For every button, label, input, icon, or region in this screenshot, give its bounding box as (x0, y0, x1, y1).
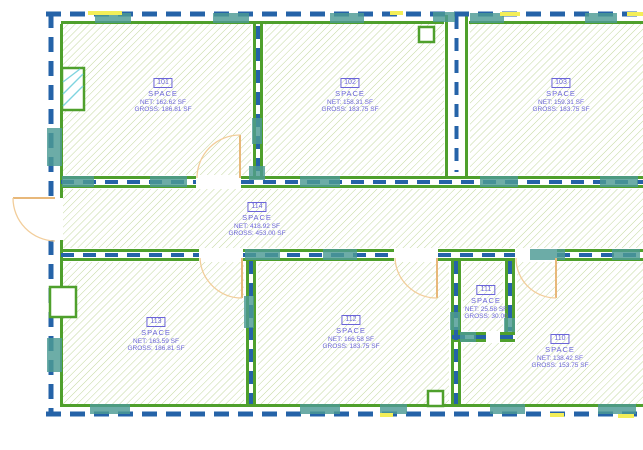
room-number-box: 102 (340, 78, 360, 88)
room-gross-area: GROSS: 453.00 SF (228, 230, 285, 238)
room-name: SPACE (532, 90, 589, 99)
room-name: SPACE (228, 214, 285, 223)
room-number-box: 112 (341, 315, 360, 325)
room-gross-area: GROSS: 153.75 SF (531, 362, 588, 370)
room-label-103[interactable]: 103 SPACE NET: 159.31 SF GROSS: 183.75 S… (532, 71, 589, 114)
room-label-110[interactable]: 110 SPACE NET: 138.42 SF GROSS: 153.75 S… (531, 327, 588, 370)
room-number-box: 110 (550, 334, 569, 344)
floorplan-canvas[interactable]: 101 SPACE NET: 162.62 SF GROSS: 186.81 S… (0, 0, 643, 450)
room-gross-area: GROSS: 30.00 (464, 313, 507, 321)
room-name: SPACE (134, 90, 191, 99)
room-gross-area: GROSS: 183.75 SF (532, 106, 589, 114)
room-number-box: 111 (477, 285, 496, 295)
room-net-area: NET: 138.42 SF (531, 355, 588, 363)
room-number-box: 101 (153, 78, 173, 88)
room-gross-area: GROSS: 186.81 SF (134, 106, 191, 114)
room-number-box: 113 (146, 317, 165, 327)
room-net-area: NET: 158.31 SF (321, 99, 378, 107)
room-gross-area: GROSS: 183.75 SF (321, 106, 378, 114)
floorplan-drawing (0, 0, 643, 450)
room-label-114[interactable]: 114 SPACE NET: 418.92 SF GROSS: 453.00 S… (228, 195, 285, 238)
room-label-112[interactable]: 112 SPACE NET: 166.58 SF GROSS: 183.75 S… (322, 308, 379, 351)
room-net-area: NET: 163.59 SF (127, 338, 184, 346)
room-name: SPACE (322, 327, 379, 336)
room-name: SPACE (464, 297, 507, 306)
room-net-area: NET: 418.92 SF (228, 223, 285, 231)
room-name: SPACE (321, 90, 378, 99)
room-label-111[interactable]: 111 SPACE NET: 25.58 SF GROSS: 30.00 (464, 278, 507, 321)
room-gross-area: GROSS: 183.75 SF (322, 343, 379, 351)
room-number-box: 103 (551, 78, 571, 88)
column-symbol-top (419, 27, 434, 42)
room-gross-area: GROSS: 186.81 SF (127, 345, 184, 353)
room-net-area: NET: 166.58 SF (322, 336, 379, 344)
room-net-area: NET: 159.31 SF (532, 99, 589, 107)
room-name: SPACE (127, 329, 184, 338)
wall-notch (50, 287, 76, 317)
column-symbol-bottom (428, 391, 443, 406)
room-net-area: NET: 25.58 SF (464, 306, 507, 314)
room-name: SPACE (531, 346, 588, 355)
room-number-box: 114 (247, 202, 266, 212)
room-net-area: NET: 162.62 SF (134, 99, 191, 107)
room-label-113[interactable]: 113 SPACE NET: 163.59 SF GROSS: 186.81 S… (127, 310, 184, 353)
window-symbol (62, 68, 84, 110)
room-label-101[interactable]: 101 SPACE NET: 162.62 SF GROSS: 186.81 S… (134, 71, 191, 114)
door-swing-exterior-left (13, 198, 55, 241)
room-label-102[interactable]: 102 SPACE NET: 158.31 SF GROSS: 183.75 S… (321, 71, 378, 114)
